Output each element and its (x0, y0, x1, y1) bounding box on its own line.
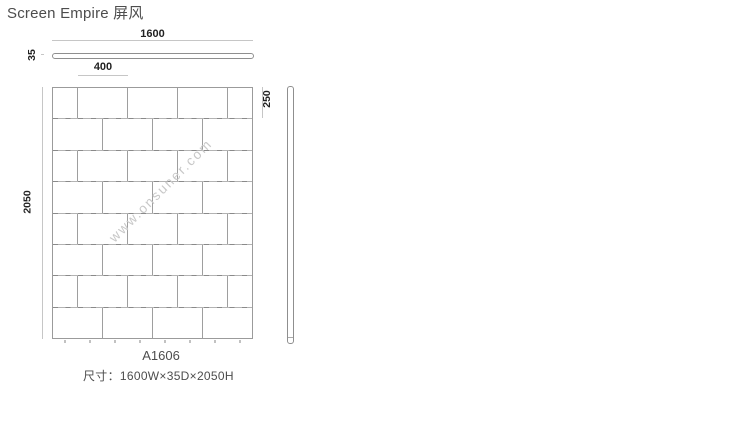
brick-row (53, 181, 252, 212)
model-number-label: A1606 (61, 348, 261, 363)
brick-cell (127, 151, 177, 181)
foot-glide (64, 340, 66, 343)
foot-glide (114, 340, 116, 343)
brick-cell (53, 182, 102, 212)
foot-glide (89, 340, 91, 343)
brick-cell (202, 308, 252, 338)
brick-cell (177, 214, 227, 244)
dim-depth-tick (41, 54, 44, 55)
brick-cell (53, 119, 102, 149)
brick-cell (227, 276, 252, 306)
dim-brick-width-label: 400 (78, 61, 128, 73)
brick-cell (202, 119, 252, 149)
brick-row (53, 275, 252, 306)
brick-cell (102, 119, 152, 149)
brick-row (53, 150, 252, 181)
foot-glide (164, 340, 166, 343)
foot-glide (239, 340, 241, 343)
dim-width-label: 1600 (52, 28, 253, 40)
brick-cell (53, 276, 77, 306)
brick-cell (77, 214, 127, 244)
brick-cell (53, 245, 102, 275)
brick-cell (102, 308, 152, 338)
dim-brick-height-label: 250 (261, 90, 273, 108)
brick-row (53, 88, 252, 118)
feet-layer (52, 340, 253, 344)
brick-cell (152, 245, 202, 275)
dim-height-label: 2050 (22, 190, 34, 213)
front-view-grid (52, 87, 253, 339)
brick-cell (152, 119, 202, 149)
brick-cell (102, 182, 152, 212)
brick-cell (77, 276, 127, 306)
dim-brick-width-line (78, 75, 128, 76)
brick-cell (53, 214, 77, 244)
dim-height-line (42, 87, 43, 339)
top-view-panel (52, 53, 254, 59)
brick-row (53, 244, 252, 275)
brick-cell (77, 88, 127, 118)
dim-depth-label: 35 (26, 49, 38, 61)
brick-cell (177, 151, 227, 181)
page-title: Screen Empire 屏风 (7, 2, 144, 23)
brick-cell (127, 214, 177, 244)
brick-cell (227, 214, 252, 244)
brick-row (53, 213, 252, 244)
size-spec-label: 尺寸：1600W×35D×2050H (83, 367, 234, 384)
foot-glide (139, 340, 141, 343)
brick-cell (127, 276, 177, 306)
brick-cell (177, 276, 227, 306)
brick-cell (202, 182, 252, 212)
brick-cell (127, 88, 177, 118)
brick-cell (152, 308, 202, 338)
brick-cell (227, 88, 252, 118)
brick-cell (227, 151, 252, 181)
brick-cell (77, 151, 127, 181)
brick-cell (102, 245, 152, 275)
spec-drawing-page: Screen Empire 屏风 1600 35 400 2050 250 ww… (0, 0, 750, 435)
side-view-panel (287, 86, 294, 344)
foot-glide (189, 340, 191, 343)
brick-cell (177, 88, 227, 118)
brick-cell (53, 308, 102, 338)
brick-cell (152, 182, 202, 212)
side-view-foot-line (288, 337, 293, 338)
foot-glide (214, 340, 216, 343)
brick-cell (53, 88, 77, 118)
dim-width-line (52, 40, 253, 41)
brick-cell (202, 245, 252, 275)
brick-cell (53, 151, 77, 181)
brick-row (53, 307, 252, 338)
brick-row (53, 118, 252, 149)
